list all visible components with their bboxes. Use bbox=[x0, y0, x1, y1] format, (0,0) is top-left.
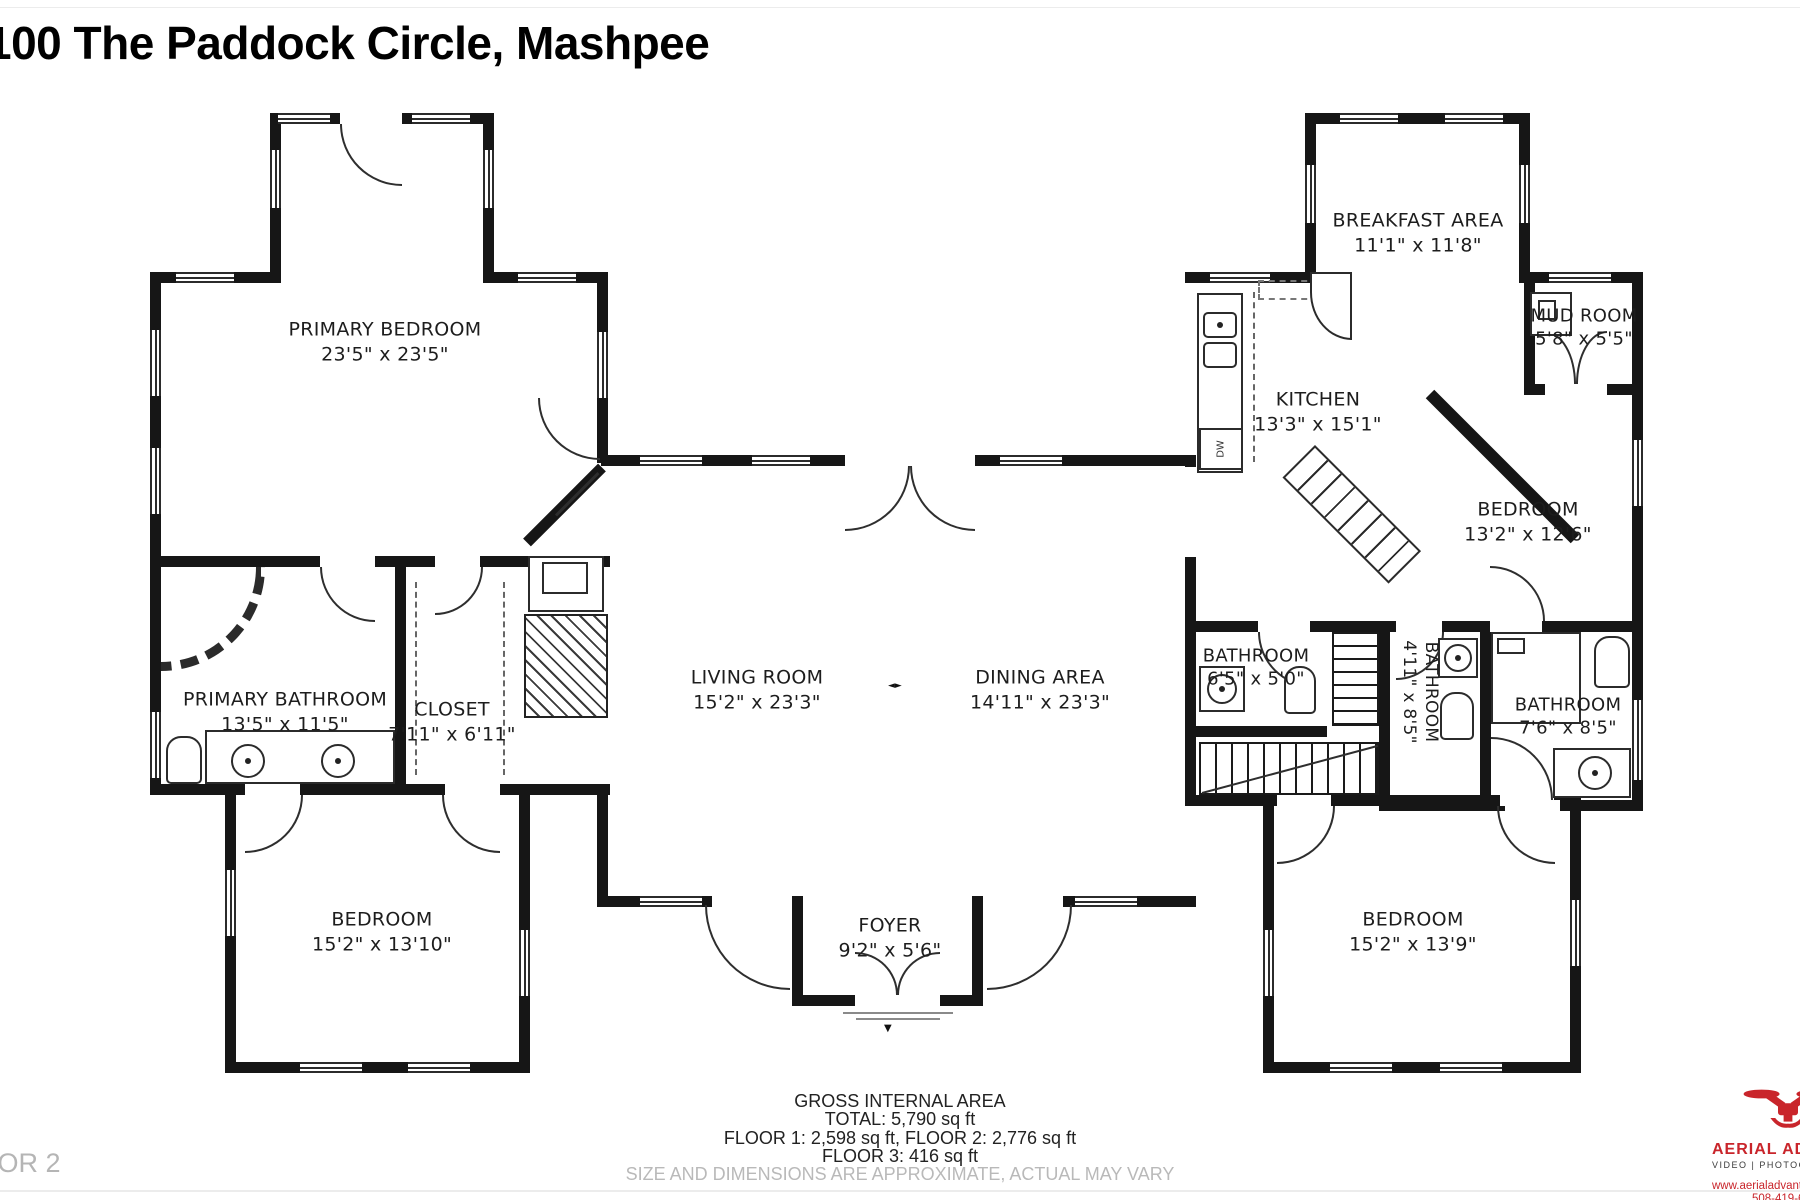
room-dims: 7'11" x 6'11" bbox=[388, 722, 516, 747]
room-dims: 14'11" x 23'3" bbox=[970, 690, 1110, 715]
window bbox=[176, 272, 234, 283]
room-dims: 4'11" x 8'5" bbox=[1398, 640, 1420, 744]
room-name: FOYER bbox=[839, 913, 942, 938]
room-label-primary-bedroom: PRIMARY BEDROOM 23'5" x 23'5" bbox=[289, 317, 482, 366]
room-label-mud-room: MUD ROOM 5'8" x 5'5" bbox=[1530, 305, 1637, 352]
curved-shower bbox=[161, 567, 265, 671]
room-dims: 6'5" x 5'0" bbox=[1203, 668, 1310, 691]
room-label-foyer: FOYER 9'2" x 5'6" bbox=[839, 913, 942, 962]
room-name: PRIMARY BATHROOM bbox=[183, 687, 387, 712]
total-area: TOTAL: 5,790 sq ft bbox=[626, 1110, 1175, 1128]
room-name: BEDROOM bbox=[1464, 497, 1592, 522]
window bbox=[518, 272, 576, 283]
window bbox=[1440, 1062, 1502, 1073]
room-label-bedroom-right: BEDROOM 13'2" x 12'6" bbox=[1464, 497, 1592, 546]
room-name: LIVING ROOM bbox=[691, 665, 824, 690]
floor-areas: FLOOR 1: 2,598 sq ft, FLOOR 2: 2,776 sq … bbox=[626, 1129, 1175, 1147]
sink-drain bbox=[1455, 655, 1461, 661]
room-label-bedroom-left: BEDROOM 15'2" x 13'10" bbox=[312, 907, 452, 956]
wall bbox=[1379, 621, 1390, 811]
wall bbox=[1185, 795, 1274, 806]
window bbox=[597, 332, 608, 398]
floorplan-page: 100 The Paddock Circle, Mashpee bbox=[0, 0, 1800, 1200]
wall bbox=[225, 1062, 530, 1073]
door-arc bbox=[1490, 566, 1545, 621]
window bbox=[1263, 930, 1274, 996]
toilet bbox=[1594, 636, 1630, 688]
room-dims: 7'6" x 8'5" bbox=[1515, 717, 1622, 740]
sink-drain bbox=[1217, 322, 1223, 328]
wall bbox=[519, 784, 530, 1073]
toilet bbox=[1440, 692, 1474, 740]
room-label-living-room: LIVING ROOM 15'2" x 23'3" bbox=[691, 665, 824, 714]
room-label-bathroom-small: BATHROOM 6'5" x 5'0" bbox=[1203, 645, 1310, 692]
room-name: DINING AREA bbox=[970, 665, 1110, 690]
door-leaf bbox=[555, 472, 600, 517]
room-label-breakfast-area: BREAKFAST AREA 11'1" x 11'8" bbox=[1333, 208, 1504, 257]
fireplace-hearth bbox=[542, 562, 588, 594]
window bbox=[150, 330, 161, 396]
door-opening bbox=[803, 896, 972, 907]
sink-drain bbox=[1592, 770, 1598, 776]
window bbox=[1549, 272, 1611, 283]
window bbox=[752, 455, 810, 466]
wall bbox=[792, 896, 803, 1006]
window bbox=[225, 870, 236, 936]
window bbox=[1632, 700, 1643, 780]
room-dims: 5'8" x 5'5" bbox=[1530, 328, 1637, 351]
room-label-kitchen: KITCHEN 13'3" x 15'1" bbox=[1254, 387, 1382, 436]
wall bbox=[1185, 455, 1196, 467]
wall bbox=[1185, 632, 1196, 737]
top-hairline bbox=[0, 7, 1800, 8]
direction-arrow: ▼ bbox=[884, 1024, 892, 1034]
room-dims: 13'2" x 12'6" bbox=[1464, 522, 1592, 547]
peninsula-counter bbox=[1310, 272, 1352, 340]
door-arc bbox=[442, 795, 500, 853]
door-opening bbox=[1490, 621, 1542, 632]
wall bbox=[150, 784, 610, 795]
drone-icon bbox=[1740, 1086, 1800, 1134]
room-dims: 13'3" x 15'1" bbox=[1254, 412, 1382, 437]
area-summary: GROSS INTERNAL AREA TOTAL: 5,790 sq ft F… bbox=[626, 1092, 1175, 1184]
window bbox=[1075, 896, 1137, 907]
room-dims: 9'2" x 5'6" bbox=[839, 938, 942, 963]
window bbox=[1000, 455, 1062, 466]
room-label-bedroom-bottom-right: BEDROOM 15'2" x 13'9" bbox=[1349, 907, 1477, 956]
dishwasher-label: DW bbox=[1216, 440, 1227, 458]
door-opening bbox=[1258, 621, 1310, 632]
room-name: MUD ROOM bbox=[1530, 305, 1637, 328]
front-step bbox=[856, 1018, 940, 1020]
door-arc bbox=[320, 567, 375, 622]
range-cooktop bbox=[1282, 445, 1421, 584]
window bbox=[300, 1062, 362, 1073]
door-arc bbox=[435, 567, 483, 615]
room-name: PRIMARY BEDROOM bbox=[289, 317, 482, 342]
door-opening bbox=[845, 455, 975, 466]
window bbox=[519, 930, 530, 996]
french-door-arc bbox=[910, 466, 975, 531]
front-step bbox=[843, 1012, 953, 1014]
sink-drain bbox=[245, 758, 251, 764]
door-opening bbox=[340, 113, 402, 124]
door-opening bbox=[435, 556, 480, 567]
window bbox=[483, 150, 494, 208]
logo-brand-text: AERIAL ADVANT bbox=[1712, 1141, 1800, 1159]
upper-cabinet-dashed-box bbox=[1258, 280, 1318, 300]
door-arc bbox=[1277, 806, 1335, 864]
window bbox=[1340, 113, 1398, 124]
room-name: BATHROOM bbox=[1515, 694, 1622, 717]
wall bbox=[1185, 726, 1327, 737]
door-arc bbox=[705, 905, 790, 990]
room-name: BREAKFAST AREA bbox=[1333, 208, 1504, 233]
door-opening bbox=[1277, 795, 1331, 806]
room-label-bathroom-right: BATHROOM 7'6" x 8'5" bbox=[1515, 694, 1622, 741]
door-arc bbox=[1491, 737, 1553, 800]
door-opening bbox=[245, 784, 300, 795]
window bbox=[640, 455, 702, 466]
toilet bbox=[166, 736, 202, 784]
room-name: KITCHEN bbox=[1254, 387, 1382, 412]
room-label-dining-area: DINING AREA 14'11" x 23'3" bbox=[970, 665, 1110, 714]
room-name: BATHROOM bbox=[1420, 640, 1442, 744]
wall bbox=[1263, 1062, 1581, 1073]
logo-subtitle: VIDEO | PHOTOGRA bbox=[1712, 1160, 1800, 1170]
window bbox=[1445, 113, 1503, 124]
door-opening bbox=[855, 995, 940, 1006]
room-name: CLOSET bbox=[388, 697, 516, 722]
window bbox=[412, 113, 470, 124]
room-dims: 23'5" x 23'5" bbox=[289, 342, 482, 367]
logo-phone: 508-419-6149 bbox=[1712, 1193, 1800, 1200]
center-marker: ◄► bbox=[888, 682, 902, 691]
room-dims: 15'2" x 13'9" bbox=[1349, 932, 1477, 957]
room-dims: 15'2" x 13'10" bbox=[312, 932, 452, 957]
kitchen-sink-basin bbox=[1203, 342, 1237, 368]
wall bbox=[1480, 621, 1491, 811]
room-name: BEDROOM bbox=[1349, 907, 1477, 932]
door-opening bbox=[445, 784, 500, 795]
window bbox=[408, 1062, 470, 1073]
room-dims: 15'2" x 23'3" bbox=[691, 690, 824, 715]
window bbox=[278, 113, 330, 124]
window bbox=[1519, 165, 1530, 223]
window bbox=[1570, 900, 1581, 966]
door-arc bbox=[340, 124, 402, 186]
door-opening bbox=[1545, 384, 1607, 395]
window bbox=[150, 448, 161, 514]
room-dims: 13'5" x 11'5" bbox=[183, 712, 387, 737]
window bbox=[1305, 165, 1316, 223]
wall bbox=[395, 567, 406, 795]
window bbox=[270, 150, 281, 208]
room-dims: 11'1" x 11'8" bbox=[1333, 233, 1504, 258]
window bbox=[150, 712, 161, 778]
gross-area-title: GROSS INTERNAL AREA bbox=[626, 1092, 1175, 1110]
window bbox=[1632, 440, 1643, 506]
door-opening bbox=[320, 556, 375, 567]
sink-drain bbox=[335, 758, 341, 764]
disclaimer: SIZE AND DIMENSIONS ARE APPROXIMATE, ACT… bbox=[626, 1165, 1175, 1183]
door-arc bbox=[1497, 806, 1555, 864]
wall bbox=[597, 784, 608, 907]
window bbox=[640, 896, 702, 907]
wall bbox=[972, 896, 983, 1006]
door-arc bbox=[538, 398, 600, 460]
chimney-hatch bbox=[524, 614, 608, 718]
dishwasher: DW bbox=[1199, 428, 1243, 470]
door-opening bbox=[1185, 467, 1196, 557]
shower-head bbox=[1497, 638, 1525, 654]
window bbox=[1330, 1062, 1392, 1073]
floor-number-label: FLOOR 2 bbox=[0, 1148, 61, 1179]
room-name: BEDROOM bbox=[312, 907, 452, 932]
door-opening bbox=[1396, 621, 1442, 632]
room-label-bathroom-mid: BATHROOM 4'11" x 8'5" bbox=[1398, 640, 1442, 744]
french-door-arc bbox=[845, 466, 910, 531]
page-title: 100 The Paddock Circle, Mashpee bbox=[0, 16, 709, 70]
door-arc bbox=[245, 795, 303, 853]
staircase-upper bbox=[1332, 632, 1379, 726]
room-label-closet: CLOSET 7'11" x 6'11" bbox=[388, 697, 516, 746]
room-name: BATHROOM bbox=[1203, 645, 1310, 668]
photography-logo: AERIAL ADVANT VIDEO | PHOTOGRA www.aeria… bbox=[1712, 1086, 1800, 1200]
room-label-primary-bathroom: PRIMARY BATHROOM 13'5" x 11'5" bbox=[183, 687, 387, 736]
floor3-area: FLOOR 3: 416 sq ft bbox=[626, 1147, 1175, 1165]
door-arc bbox=[987, 905, 1072, 990]
bottom-hairline bbox=[0, 1190, 1800, 1192]
